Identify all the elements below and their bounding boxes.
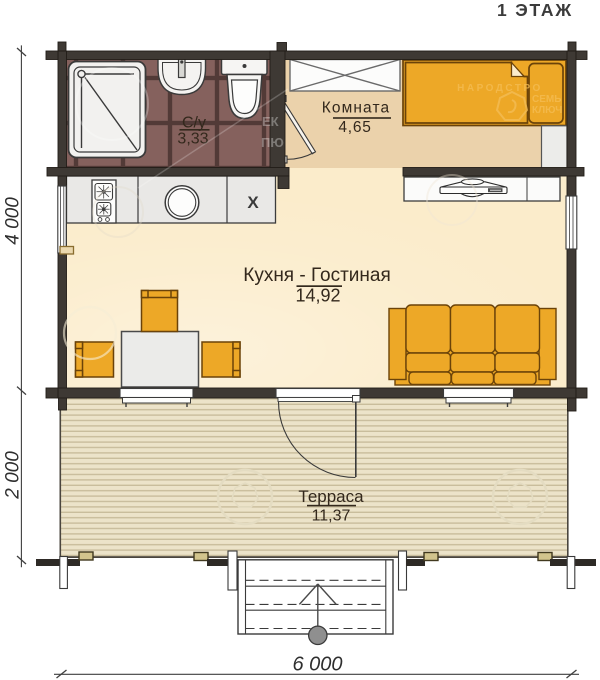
svg-text:Терраса: Терраса	[298, 487, 364, 506]
svg-text:6 000: 6 000	[292, 654, 342, 676]
svg-text:2 000: 2 000	[3, 451, 24, 500]
svg-text:4 000: 4 000	[3, 197, 24, 245]
svg-text:ПЮ: ПЮ	[261, 135, 284, 150]
svg-text:11,37: 11,37	[312, 508, 351, 525]
svg-text:Комната: Комната	[322, 100, 390, 117]
svg-text:СЕМЬ: СЕМЬ	[532, 94, 561, 105]
svg-text:1 ЭТАЖ: 1 ЭТАЖ	[497, 0, 573, 20]
svg-text:4,65: 4,65	[338, 119, 371, 136]
svg-text:КЛЮЧ: КЛЮЧ	[532, 105, 562, 116]
svg-text:X: X	[247, 193, 259, 212]
svg-text:Кухня - Гостиная: Кухня - Гостиная	[243, 265, 390, 286]
svg-text:ЕК: ЕК	[262, 114, 279, 129]
svg-text:14,92: 14,92	[295, 286, 340, 306]
svg-text:НАРОДСТРО: НАРОДСТРО	[457, 83, 543, 94]
svg-text:С/у: С/у	[182, 115, 206, 132]
